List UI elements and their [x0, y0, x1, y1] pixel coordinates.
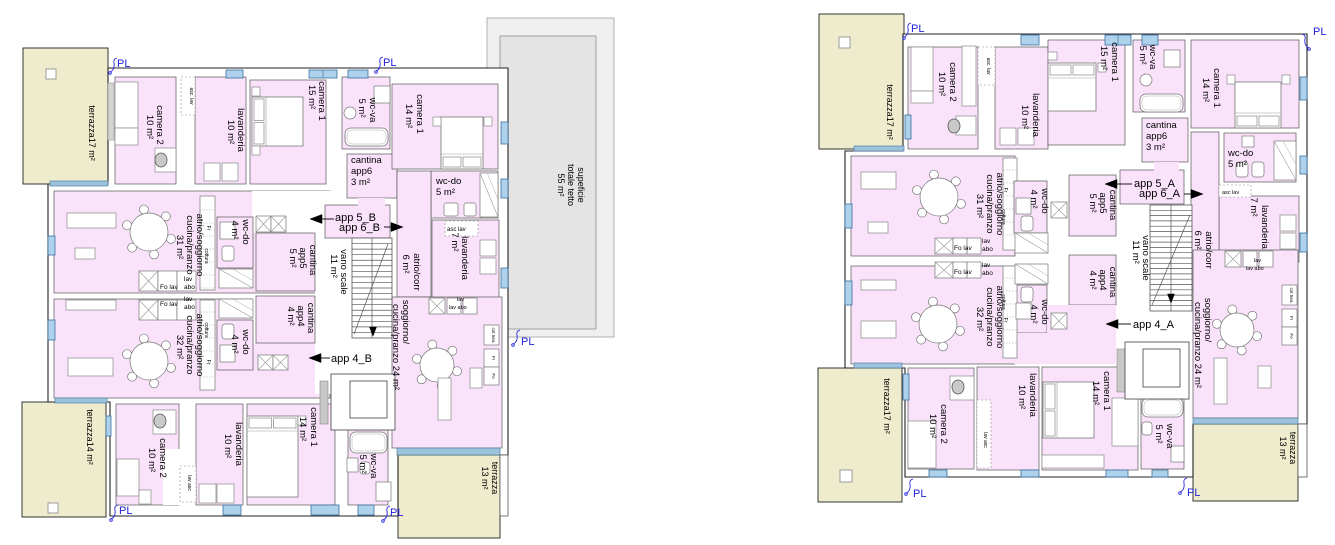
- svg-text:cottura: cottura: [1000, 294, 1006, 310]
- svg-text:camera 1: camera 1: [1109, 42, 1120, 82]
- svg-text:app6: app6: [351, 166, 372, 177]
- svg-text:11 m²: 11 m²: [1130, 240, 1141, 264]
- svg-text:32 m²: 32 m²: [974, 307, 985, 331]
- svg-text:app 6_B: app 6_B: [339, 222, 380, 234]
- svg-text:31 m²: 31 m²: [974, 194, 985, 218]
- svg-text:31 m²: 31 m²: [174, 235, 185, 259]
- svg-text:10 m²: 10 m²: [936, 72, 947, 96]
- svg-text:Fo lav: Fo lav: [954, 269, 972, 276]
- svg-text:5 m²: 5 m²: [357, 455, 368, 474]
- svg-text:lav: lav: [1254, 258, 1261, 264]
- svg-text:lav abo: lav abo: [1246, 266, 1264, 272]
- svg-text:lavanderia: lavanderia: [1027, 373, 1038, 418]
- svg-text:10 m²: 10 m²: [927, 414, 938, 438]
- svg-text:6 m²: 6 m²: [1192, 231, 1203, 250]
- svg-text:PL: PL: [383, 57, 396, 69]
- svg-text:10 m²: 10 m²: [1019, 105, 1030, 129]
- svg-text:5 m²: 5 m²: [1153, 425, 1164, 444]
- svg-text:55 m²: 55 m²: [556, 173, 566, 196]
- svg-text:10 m²: 10 m²: [144, 115, 155, 139]
- svg-text:terrazza14 m²: terrazza14 m²: [85, 409, 95, 465]
- svg-text:cot tura: cot tura: [1289, 287, 1294, 303]
- svg-text:lavanderia: lavanderia: [1030, 93, 1041, 138]
- svg-text:Fr: Fr: [491, 356, 496, 361]
- svg-text:camera 1: camera 1: [308, 407, 319, 447]
- svg-text:5 m²: 5 m²: [1087, 194, 1098, 213]
- svg-text:terrazza: terrazza: [1288, 432, 1298, 465]
- svg-text:wc-do: wc-do: [240, 328, 251, 354]
- svg-text:4 m²: 4 m²: [229, 221, 240, 240]
- svg-text:asc lav: asc lav: [1222, 190, 1239, 196]
- svg-text:Fo lav: Fo lav: [954, 245, 972, 252]
- svg-text:camera 2: camera 2: [157, 438, 168, 478]
- svg-text:13 m²: 13 m²: [480, 466, 490, 489]
- svg-text:lav: lav: [184, 296, 193, 303]
- svg-text:wc-do: wc-do: [1039, 298, 1050, 324]
- svg-text:Fr: Fr: [205, 226, 211, 231]
- svg-text:lav: lav: [184, 276, 193, 283]
- svg-text:atrio/corr: atrio/corr: [411, 253, 422, 290]
- svg-text:abo: abo: [982, 270, 993, 277]
- svg-text:32 m²: 32 m²: [174, 335, 185, 359]
- svg-text:cucina/pranzo 24 m²: cucina/pranzo 24 m²: [1192, 302, 1203, 388]
- svg-text:10 m²: 10 m²: [1016, 385, 1027, 409]
- svg-text:abo: abo: [184, 304, 195, 311]
- svg-text:Fo: Fo: [491, 373, 496, 379]
- svg-text:lav: lav: [982, 262, 991, 269]
- svg-text:3 m²: 3 m²: [1146, 142, 1165, 153]
- svg-text:camera 2: camera 2: [947, 62, 958, 102]
- svg-text:Fr: Fr: [1289, 316, 1294, 321]
- svg-text:app 4_A: app 4_A: [1133, 319, 1175, 331]
- svg-text:cucina/pranzo 24 m²: cucina/pranzo 24 m²: [390, 304, 401, 390]
- svg-text:lav asc: lav asc: [186, 475, 192, 491]
- svg-text:Fr: Fr: [1002, 318, 1008, 323]
- svg-text:camera 2: camera 2: [938, 404, 949, 444]
- svg-text:terrazza17 m²: terrazza17 m²: [87, 105, 97, 161]
- svg-text:terrazza17 m²: terrazza17 m²: [882, 378, 892, 434]
- svg-text:PL: PL: [1187, 487, 1200, 499]
- svg-text:5 m²: 5 m²: [1228, 159, 1247, 170]
- svg-text:cottura: cottura: [203, 248, 209, 264]
- svg-text:wc-do: wc-do: [240, 218, 251, 244]
- svg-text:wc-do: wc-do: [1039, 187, 1050, 213]
- svg-text:asc. lav: asc. lav: [188, 88, 194, 105]
- svg-text:lav: lav: [457, 297, 464, 303]
- svg-text:13 m²: 13 m²: [1278, 436, 1288, 459]
- svg-text:asc. lav: asc. lav: [985, 58, 991, 75]
- svg-text:15 m²: 15 m²: [1098, 46, 1109, 70]
- svg-text:Fo lav: Fo lav: [160, 284, 178, 291]
- svg-text:PL: PL: [390, 507, 403, 519]
- svg-text:14 m²: 14 m²: [403, 104, 414, 128]
- svg-text:wc-va: wc-va: [367, 97, 378, 124]
- svg-text:camera 1: camera 1: [414, 94, 425, 134]
- svg-text:10 m²: 10 m²: [222, 434, 233, 458]
- svg-text:cot tura: cot tura: [491, 327, 496, 343]
- svg-text:PL: PL: [911, 23, 924, 35]
- svg-text:totale tetto: totale tetto: [566, 164, 576, 206]
- svg-text:PL: PL: [521, 336, 534, 348]
- svg-text:PL: PL: [913, 488, 926, 500]
- svg-text:PL: PL: [117, 58, 130, 70]
- svg-text:4 m²: 4 m²: [229, 335, 240, 354]
- svg-text:10 m²: 10 m²: [146, 448, 157, 472]
- svg-text:camera 1: camera 1: [1211, 68, 1222, 108]
- svg-text:Fr: Fr: [205, 360, 211, 365]
- svg-text:cottura: cottura: [1000, 209, 1006, 225]
- svg-text:11 m²: 11 m²: [328, 254, 339, 278]
- svg-text:app 6_A: app 6_A: [1139, 188, 1181, 200]
- svg-text:lavanderia: lavanderia: [1259, 205, 1270, 250]
- svg-text:lav: lav: [982, 238, 991, 245]
- svg-text:4 m²: 4 m²: [1028, 190, 1039, 209]
- svg-text:cottura: cottura: [203, 322, 209, 338]
- svg-text:wc-va: wc-va: [1164, 423, 1175, 450]
- svg-text:5 m²: 5 m²: [1137, 46, 1148, 65]
- svg-text:abo: abo: [184, 284, 195, 291]
- svg-text:4 m²: 4 m²: [1028, 305, 1039, 324]
- svg-text:Fo: Fo: [1289, 333, 1294, 339]
- svg-text:14 m²: 14 m²: [1090, 381, 1101, 405]
- svg-text:4 m²: 4 m²: [285, 307, 296, 326]
- svg-text:7 m²: 7 m²: [449, 233, 460, 252]
- svg-text:4 m²: 4 m²: [1087, 271, 1098, 290]
- svg-text:wc-va: wc-va: [368, 453, 379, 480]
- svg-text:15 m²: 15 m²: [306, 85, 317, 109]
- svg-text:wc-do: wc-do: [435, 176, 461, 187]
- svg-text:supeficie: supeficie: [576, 167, 586, 203]
- svg-text:lav abo: lav abo: [449, 305, 467, 311]
- svg-text:terrazza: terrazza: [490, 462, 500, 495]
- svg-text:terrazza17 m²: terrazza17 m²: [885, 84, 895, 140]
- svg-text:PL: PL: [1313, 26, 1326, 38]
- svg-text:Fr: Fr: [1002, 188, 1008, 193]
- svg-text:7 m²: 7 m²: [1248, 198, 1259, 217]
- svg-text:6 m²: 6 m²: [400, 255, 411, 274]
- svg-text:PL: PL: [119, 505, 132, 517]
- svg-text:5 m²: 5 m²: [287, 249, 298, 268]
- svg-text:cantina: cantina: [1146, 120, 1177, 131]
- svg-text:5 m²: 5 m²: [436, 187, 455, 198]
- svg-text:14 m²: 14 m²: [297, 417, 308, 441]
- svg-text:Fo lav: Fo lav: [160, 301, 178, 308]
- svg-text:app6: app6: [1146, 131, 1167, 142]
- svg-text:abo: abo: [982, 246, 993, 253]
- svg-text:lav asc: lav asc: [982, 432, 988, 448]
- svg-text:camera 1: camera 1: [1101, 371, 1112, 411]
- svg-text:lavanderia: lavanderia: [233, 422, 244, 467]
- svg-text:cantina: cantina: [351, 155, 382, 166]
- svg-text:app 4_B: app 4_B: [331, 353, 372, 365]
- svg-text:14 m²: 14 m²: [1200, 78, 1211, 102]
- svg-text:5 m²: 5 m²: [356, 99, 367, 118]
- svg-text:atrio/corr: atrio/corr: [1203, 231, 1214, 268]
- svg-text:10 m²: 10 m²: [225, 120, 236, 144]
- svg-text:wc-do: wc-do: [1227, 148, 1253, 159]
- svg-text:3 m²: 3 m²: [351, 177, 370, 188]
